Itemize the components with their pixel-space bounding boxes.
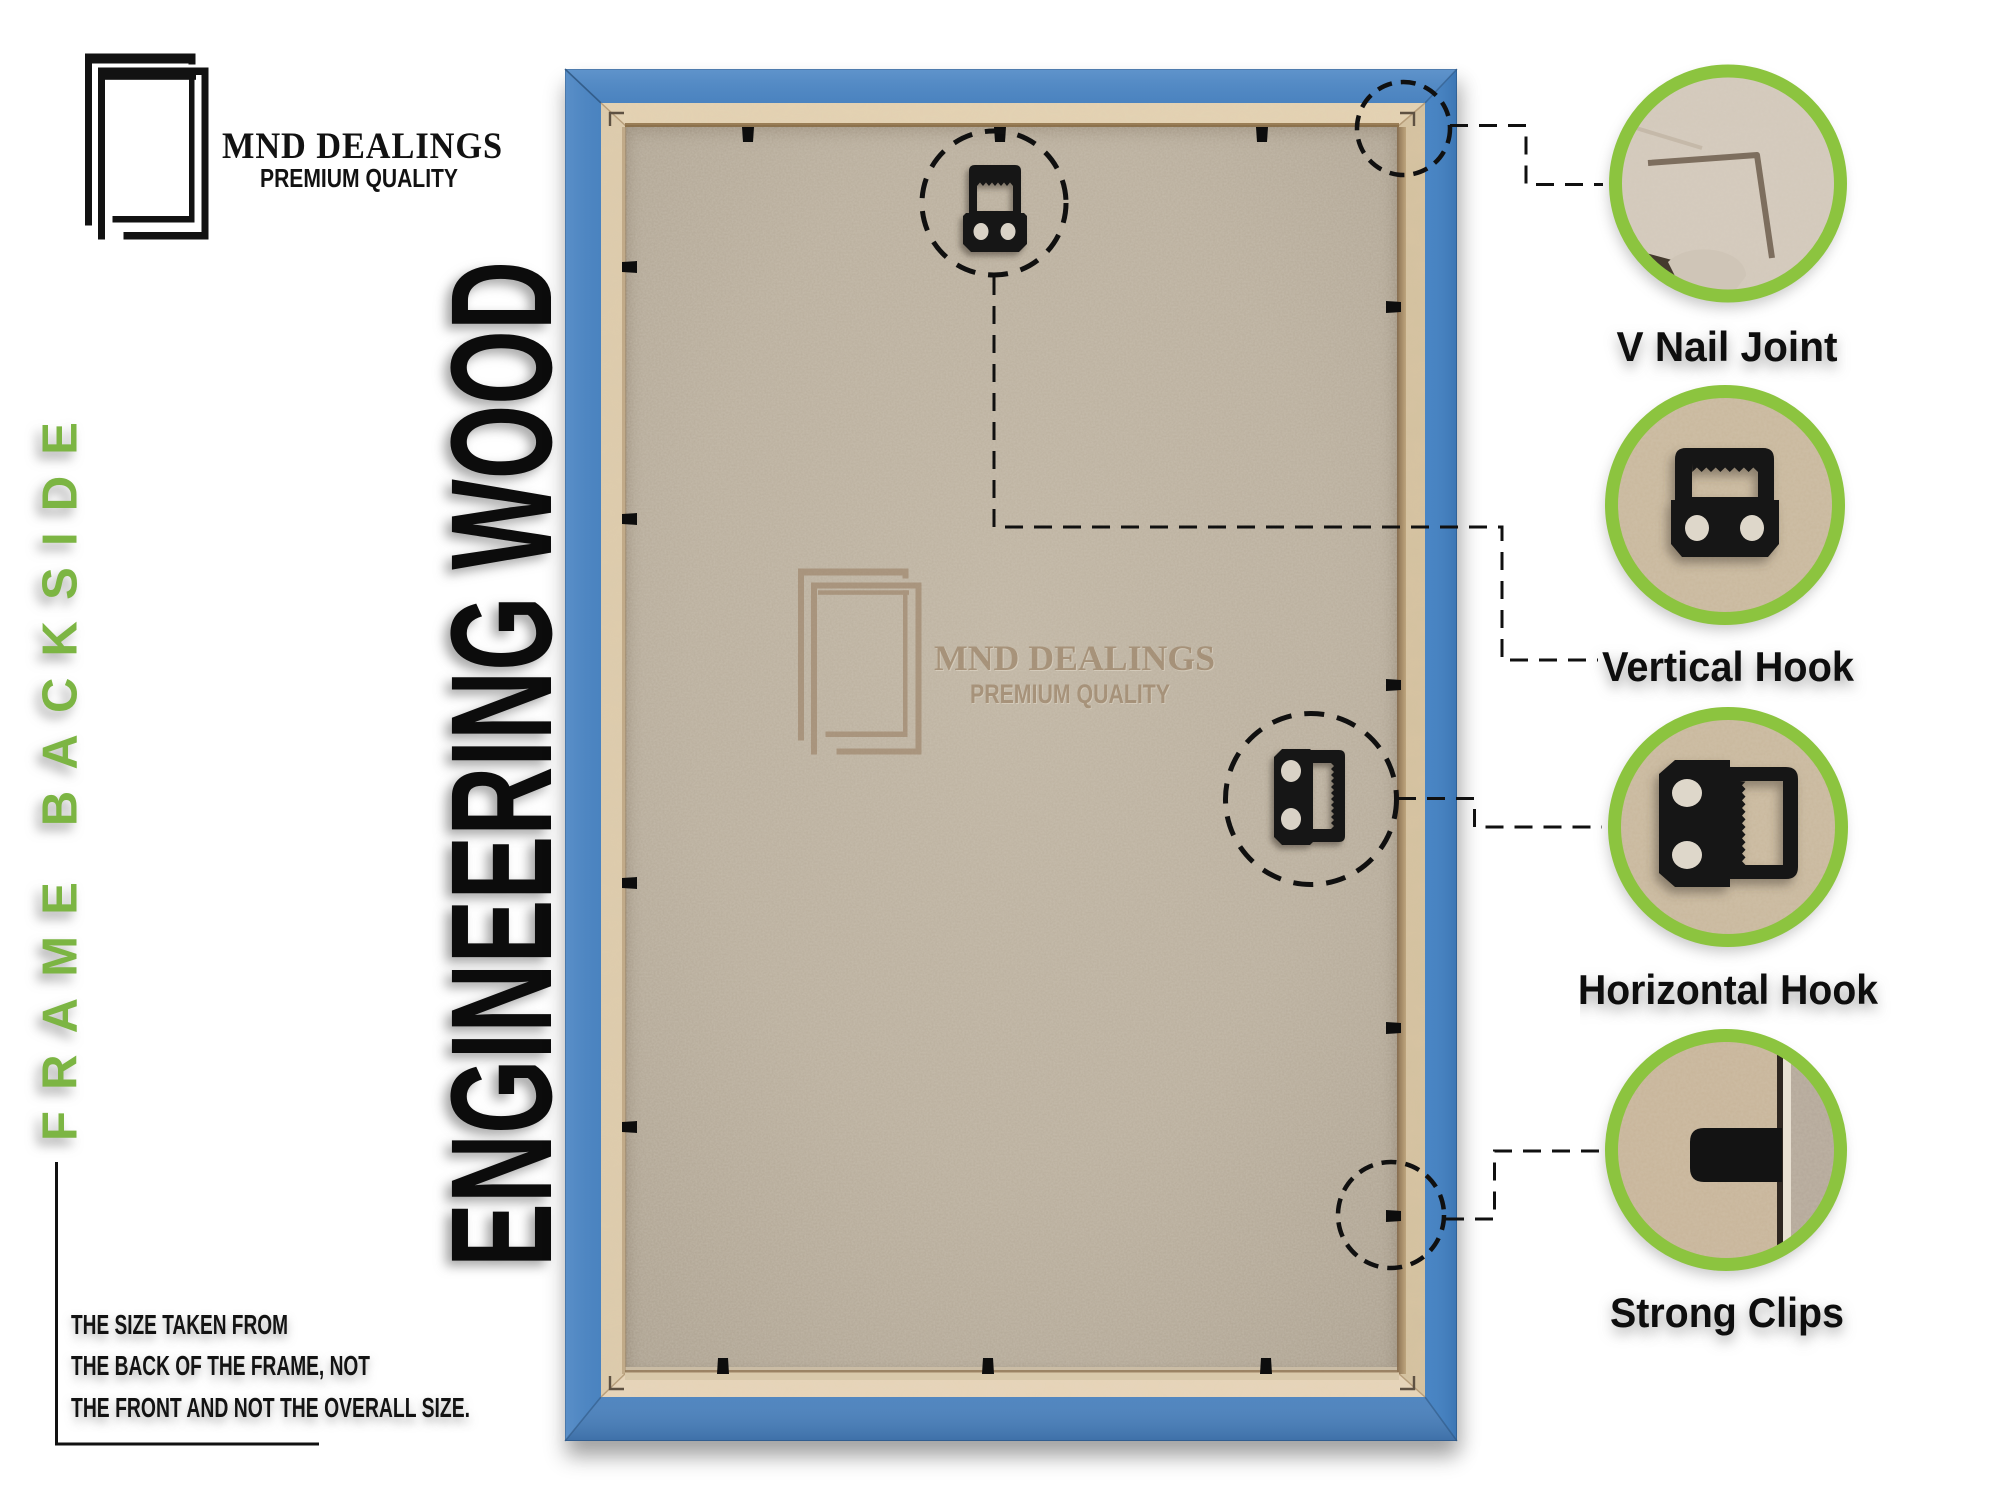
svg-text:Vertical Hook: Vertical Hook: [1602, 643, 1855, 690]
svg-text:Strong Clips: Strong Clips: [1610, 1289, 1844, 1336]
svg-text:V Nail Joint: V Nail Joint: [1617, 323, 1838, 370]
svg-text:Horizontal Hook: Horizontal Hook: [1580, 966, 1879, 1013]
